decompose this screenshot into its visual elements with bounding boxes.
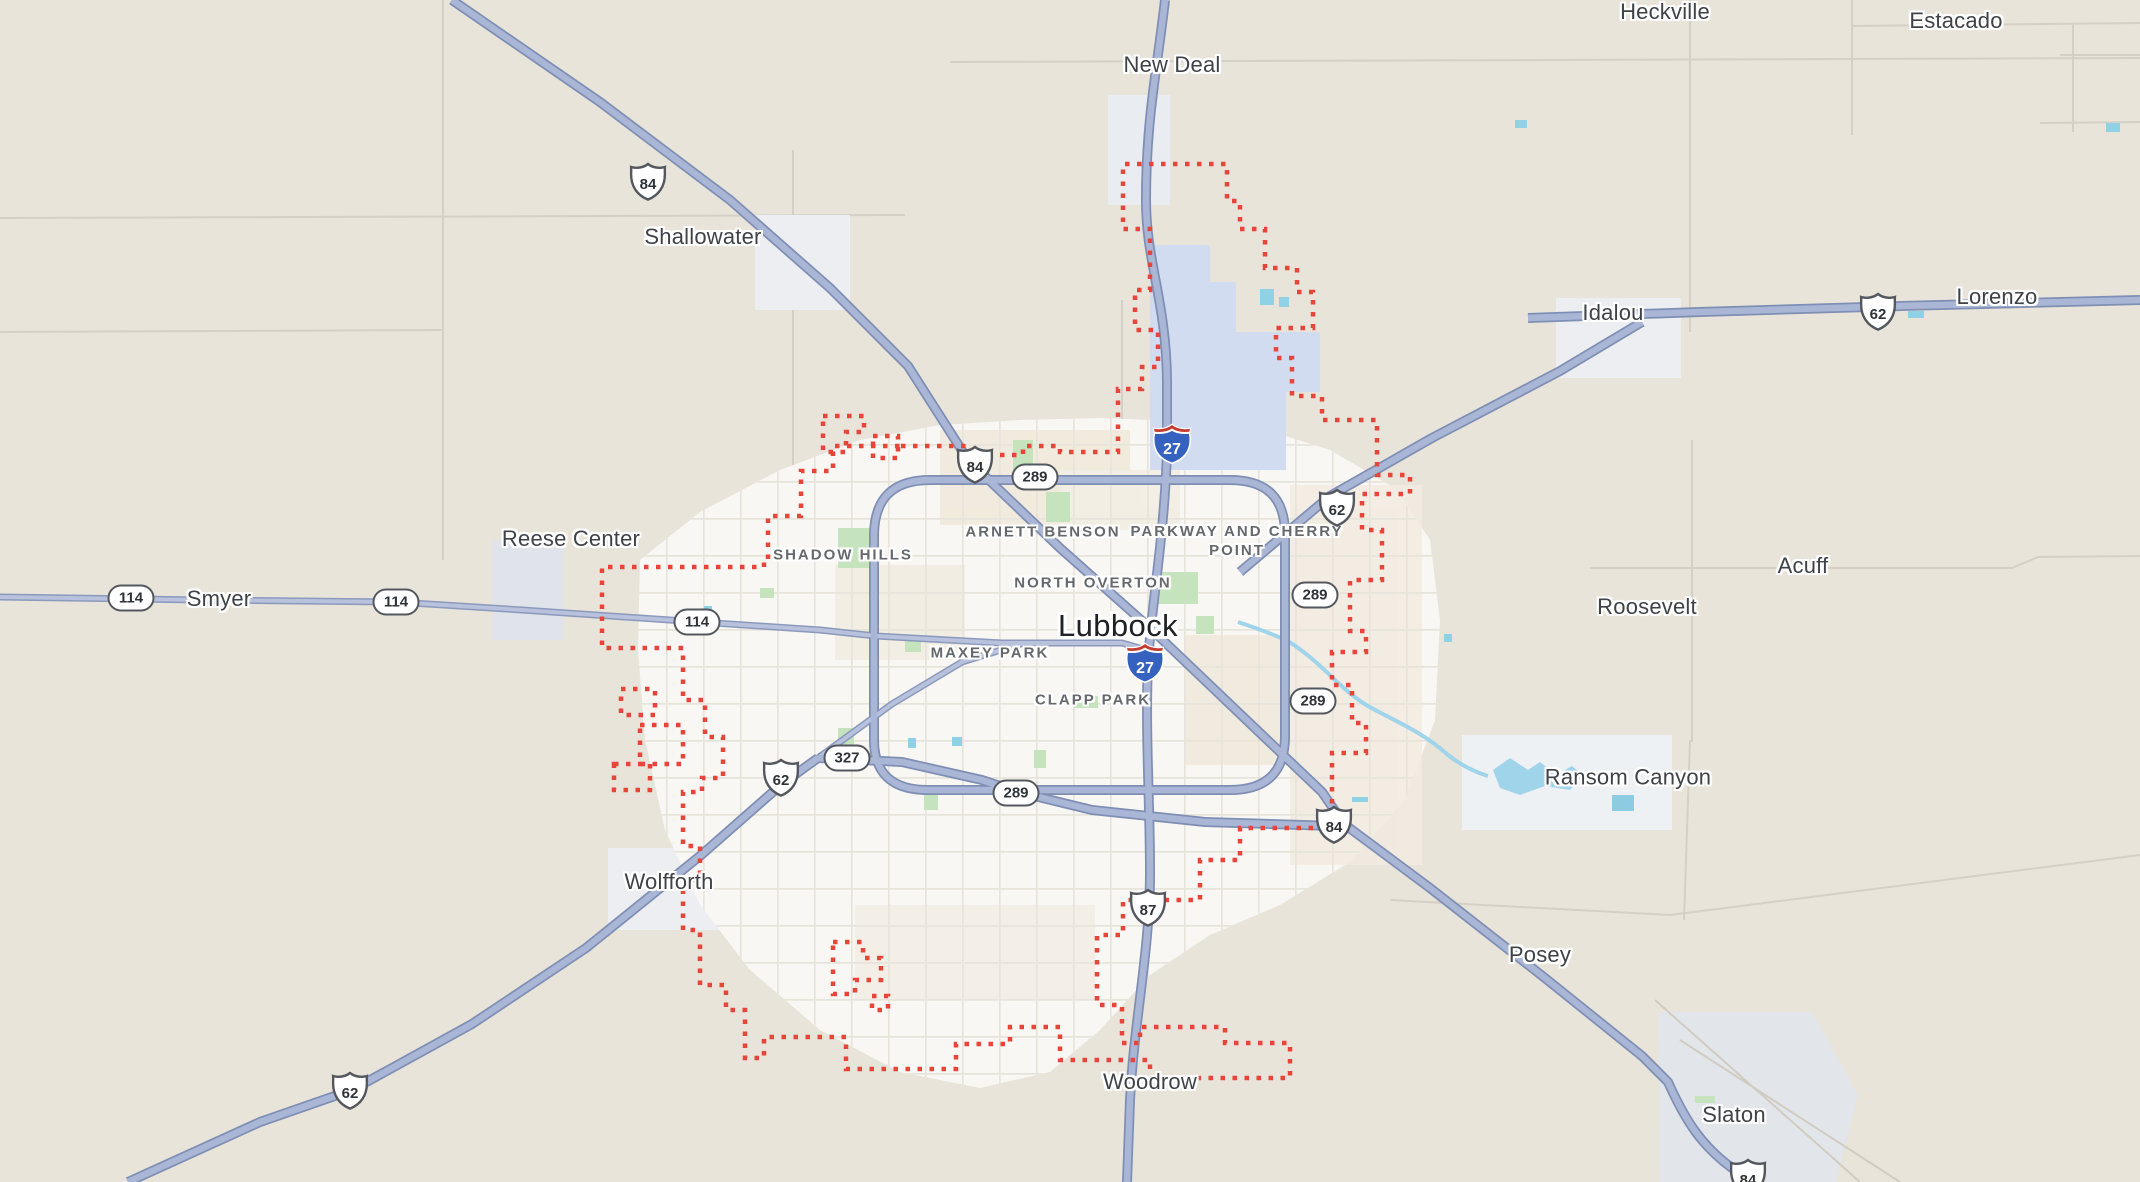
interstate-shield: 27 [1152, 423, 1192, 465]
loop-shield: 114 [674, 609, 721, 636]
us-route-shield: 62 [762, 758, 800, 798]
town-label[interactable]: New Deal [1124, 52, 1221, 78]
us-route-shield: 84 [956, 445, 994, 485]
city-label[interactable]: Lubbock [1058, 608, 1178, 644]
loop-shield: 114 [373, 589, 420, 616]
town-label[interactable]: Smyer [187, 586, 252, 612]
neighborhood-label[interactable]: SHADOW HILLS [773, 547, 913, 564]
neighborhood-label[interactable]: NORTH OVERTON [1014, 575, 1171, 592]
loop-shield: 327 [824, 745, 871, 772]
us-route-shield: 62 [1859, 292, 1897, 332]
loop-shield: 114 [108, 585, 155, 612]
loop-shield: 289 [1290, 688, 1337, 715]
town-label[interactable]: Roosevelt [1597, 594, 1697, 620]
town-label[interactable]: Reese Center [502, 526, 640, 552]
town-label[interactable]: Shallowater [644, 224, 761, 250]
town-label[interactable]: Slaton [1702, 1102, 1766, 1128]
neighborhood-label[interactable]: ARNETT BENSON [965, 524, 1120, 541]
us-route-shield: 62 [331, 1071, 369, 1111]
town-label[interactable]: Acuff [1778, 553, 1829, 579]
town-label[interactable]: Idalou [1582, 300, 1643, 326]
loop-shield: 289 [1012, 464, 1059, 491]
us-route-shield: 62 [1318, 488, 1356, 528]
loop-shield: 289 [1292, 582, 1339, 609]
interstate-shield: 27 [1125, 642, 1165, 684]
neighborhood-label[interactable]: MAXEY PARK [931, 645, 1050, 662]
map-canvas[interactable]: New Deal Shallowater Heckville Estacado … [0, 0, 2140, 1182]
town-label[interactable]: Estacado [1909, 8, 2002, 34]
town-label[interactable]: Posey [1509, 942, 1571, 968]
town-label[interactable]: Woodrow [1103, 1069, 1197, 1095]
us-route-shield: 84 [1729, 1158, 1767, 1182]
us-route-shield: 87 [1129, 888, 1167, 928]
town-label[interactable]: Heckville [1620, 0, 1710, 25]
town-label[interactable]: Lorenzo [1957, 284, 2038, 310]
town-label[interactable]: Wolfforth [624, 869, 713, 895]
us-route-shield: 84 [1315, 805, 1353, 845]
neighborhood-label[interactable]: CLAPP PARK [1035, 692, 1151, 709]
us-route-shield: 84 [629, 162, 667, 202]
loop-shield: 289 [993, 780, 1040, 807]
town-label[interactable]: Ransom Canyon [1543, 766, 1713, 789]
